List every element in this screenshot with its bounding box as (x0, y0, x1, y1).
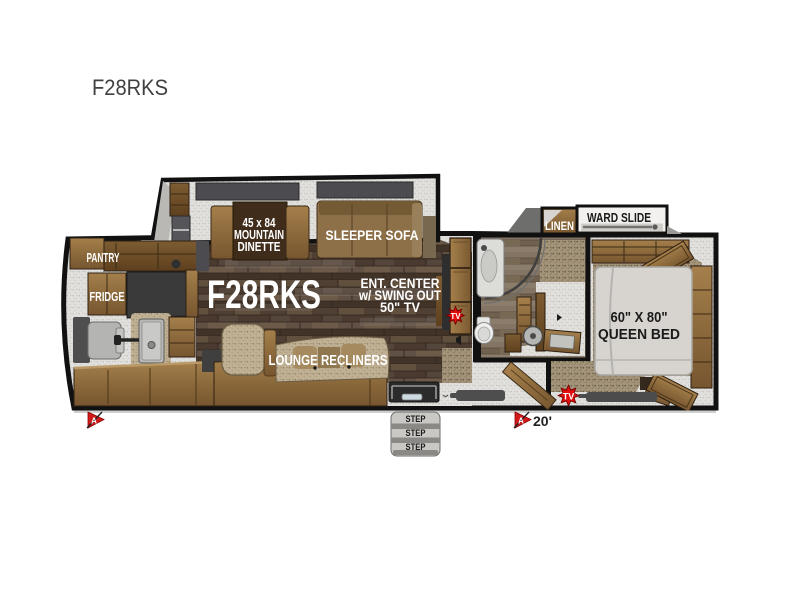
svg-text:A: A (91, 417, 97, 426)
svg-text:QUEEN BED: QUEEN BED (598, 327, 680, 343)
svg-text:PANTRY: PANTRY (87, 251, 120, 265)
svg-text:LOUNGE RECLINERS: LOUNGE RECLINERS (269, 353, 388, 369)
svg-text:A: A (518, 417, 524, 426)
svg-text:WARD SLIDE: WARD SLIDE (587, 211, 651, 225)
svg-text:TV: TV (450, 312, 461, 321)
svg-text:TV: TV (563, 392, 575, 402)
svg-text:DINETTE: DINETTE (238, 240, 281, 254)
svg-text:LINEN: LINEN (545, 219, 574, 233)
svg-text:20': 20' (533, 413, 552, 429)
svg-text:F28RKS: F28RKS (207, 273, 321, 317)
svg-text:STEP: STEP (406, 414, 427, 425)
svg-text:SLEEPER SOFA: SLEEPER SOFA (326, 228, 419, 243)
svg-text:50" TV: 50" TV (380, 300, 420, 315)
svg-text:STEP: STEP (406, 428, 427, 439)
svg-text:FRIDGE: FRIDGE (90, 290, 125, 304)
svg-text:F28RKS: F28RKS (92, 75, 168, 100)
svg-text:STEP: STEP (406, 442, 427, 453)
svg-text:60" X 80": 60" X 80" (611, 310, 668, 326)
